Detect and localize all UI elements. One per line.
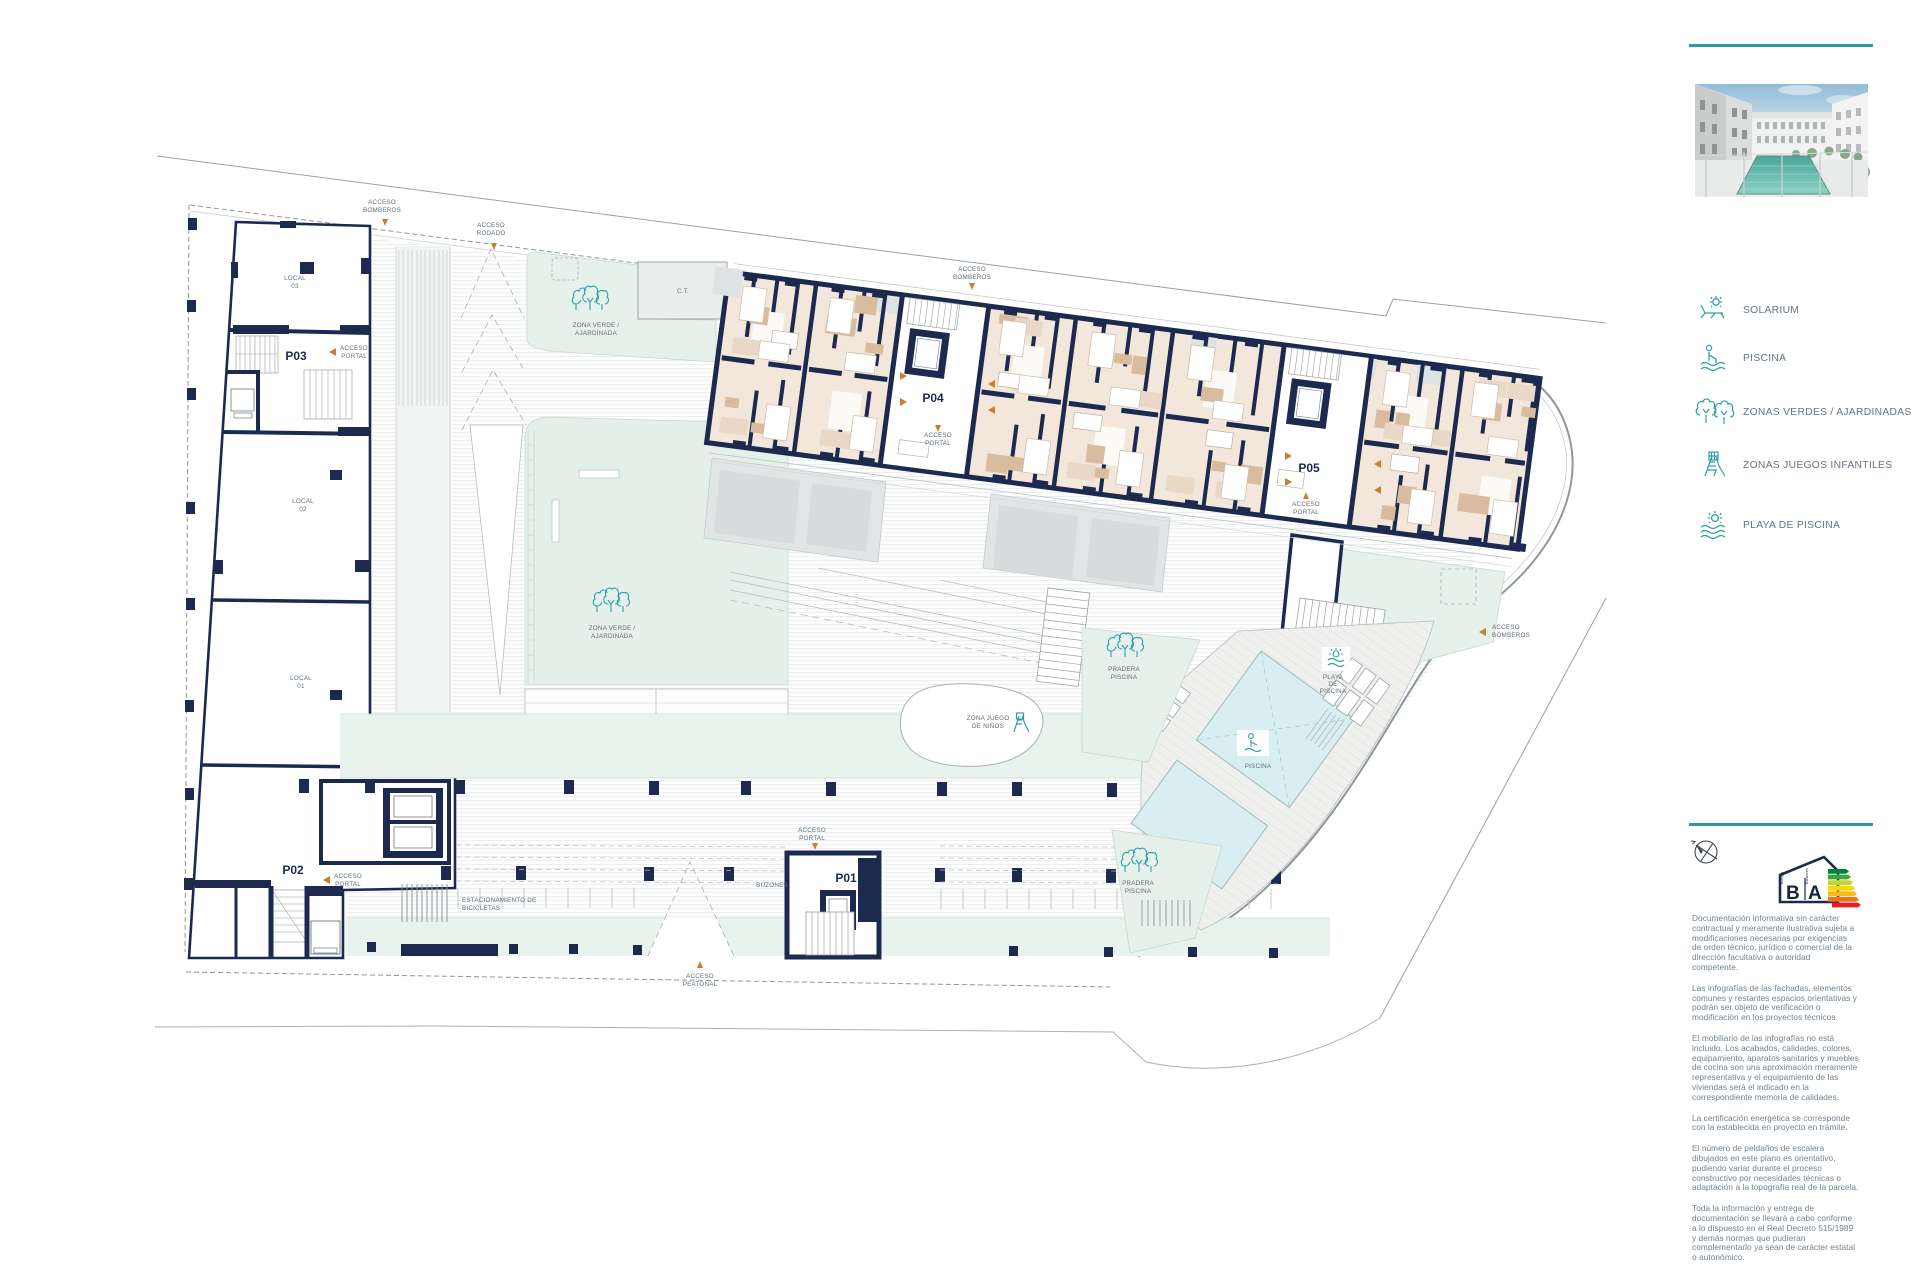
svg-text:PORTAL: PORTAL: [925, 440, 951, 447]
svg-text:PEATONAL: PEATONAL: [683, 981, 718, 988]
svg-text:BUZONES: BUZONES: [756, 882, 788, 889]
svg-text:B: B: [1786, 883, 1800, 904]
svg-text:03: 03: [291, 283, 299, 290]
svg-text:BOMBEROS: BOMBEROS: [363, 207, 401, 214]
svg-text:RODADO: RODADO: [477, 230, 506, 237]
svg-text:LOCAL: LOCAL: [290, 675, 312, 682]
svg-text:ACCESO: ACCESO: [334, 873, 362, 880]
svg-text:P02: P02: [282, 863, 304, 877]
svg-text:PISCINA: PISCINA: [1320, 688, 1347, 695]
svg-text:ESTACIONAMIENTO DE: ESTACIONAMIENTO DE: [462, 897, 536, 904]
svg-text:ACCESO: ACCESO: [686, 973, 714, 980]
svg-text:P01: P01: [835, 871, 857, 885]
svg-text:BICICLETAS: BICICLETAS: [462, 905, 500, 912]
svg-text:SOLARIUM: SOLARIUM: [1743, 305, 1799, 316]
svg-text:PISCINA: PISCINA: [1743, 353, 1786, 364]
svg-text:P04: P04: [922, 391, 944, 405]
svg-text:AJARDINADA: AJARDINADA: [591, 633, 633, 640]
svg-text:PORTAL: PORTAL: [1293, 509, 1319, 516]
svg-text:Energía: Energía: [1780, 872, 1784, 884]
svg-text:LOCAL: LOCAL: [284, 275, 306, 282]
svg-text:P05: P05: [1298, 461, 1320, 475]
svg-text:BOMBEROS: BOMBEROS: [953, 274, 991, 281]
svg-text:01: 01: [297, 683, 305, 690]
svg-text:LOCAL: LOCAL: [292, 498, 314, 505]
svg-text:ACCESO: ACCESO: [1292, 501, 1320, 508]
svg-text:ZONA JUEGO: ZONA JUEGO: [967, 715, 1010, 722]
svg-text:BOMBEROS: BOMBEROS: [1492, 632, 1530, 639]
svg-text:C.T.: C.T.: [677, 288, 689, 295]
svg-text:ACCESO: ACCESO: [1492, 624, 1520, 631]
svg-text:ZONAS VERDES / AJARDINADAS: ZONAS VERDES / AJARDINADAS: [1743, 407, 1912, 418]
svg-text:PORTAL: PORTAL: [335, 881, 361, 888]
svg-text:PLAYA: PLAYA: [1323, 674, 1344, 681]
svg-text:DE: DE: [1328, 681, 1337, 688]
svg-text:PISCINA: PISCINA: [1111, 674, 1138, 681]
svg-text:Emisiones: Emisiones: [1805, 868, 1809, 884]
svg-text:PISCINA: PISCINA: [1125, 888, 1152, 895]
svg-text:PRADERA: PRADERA: [1122, 880, 1154, 887]
svg-text:ACCESO: ACCESO: [798, 827, 826, 834]
svg-text:AJARDINADA: AJARDINADA: [575, 330, 617, 337]
svg-text:PORTAL: PORTAL: [799, 835, 825, 842]
svg-text:PRADERA: PRADERA: [1108, 666, 1140, 673]
svg-text:ZONA VERDE /: ZONA VERDE /: [589, 625, 636, 632]
svg-text:02: 02: [299, 506, 307, 513]
svg-text:PISCINA: PISCINA: [1245, 763, 1272, 770]
svg-text:P03: P03: [285, 349, 307, 363]
svg-text:DE NIÑOS: DE NIÑOS: [972, 721, 1004, 730]
svg-text:PLAYA DE PISCINA: PLAYA DE PISCINA: [1743, 520, 1840, 531]
svg-text:ACCESO: ACCESO: [924, 432, 952, 439]
svg-text:ACCESO: ACCESO: [368, 199, 396, 206]
svg-text:ZONAS JUEGOS INFANTILES: ZONAS JUEGOS INFANTILES: [1743, 460, 1892, 471]
svg-text:ACCESO: ACCESO: [340, 345, 368, 352]
svg-text:ZONA VERDE /: ZONA VERDE /: [573, 322, 620, 329]
svg-text:A: A: [1808, 883, 1822, 904]
svg-text:ACCESO: ACCESO: [477, 222, 505, 229]
svg-text:PORTAL: PORTAL: [341, 353, 367, 360]
svg-text:ACCESO: ACCESO: [958, 266, 986, 273]
